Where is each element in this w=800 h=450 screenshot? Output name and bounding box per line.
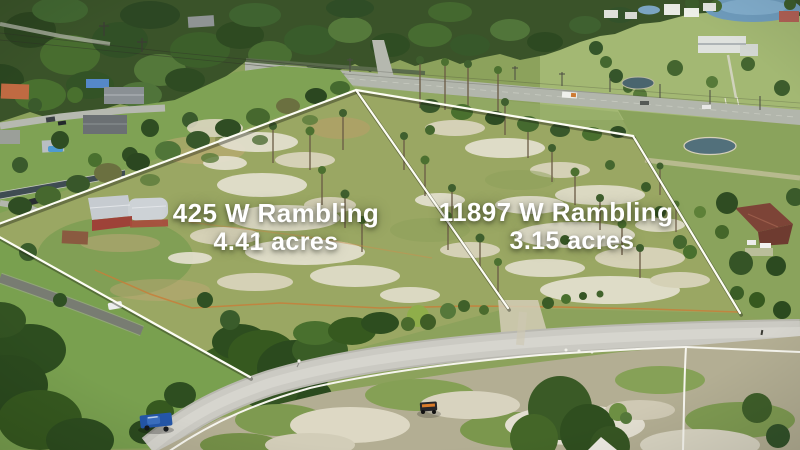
vignette xyxy=(0,0,800,450)
parcel-acreage-right: 3.15 acres xyxy=(455,227,690,256)
aerial-photo-art xyxy=(0,0,800,450)
parcel-address-left: 425 W Rambling xyxy=(173,199,379,228)
parcel-label-left: 425 W Rambling 4.41 acres xyxy=(173,199,379,257)
aerial-photo: 425 W Rambling 4.41 acres 11897 W Rambli… xyxy=(0,0,800,450)
parcel-acreage-left: 4.41 acres xyxy=(173,228,379,257)
parcel-label-right: 11897 W Rambling 3.15 acres xyxy=(439,198,674,256)
parcel-address-right: 11897 W Rambling xyxy=(439,198,674,227)
